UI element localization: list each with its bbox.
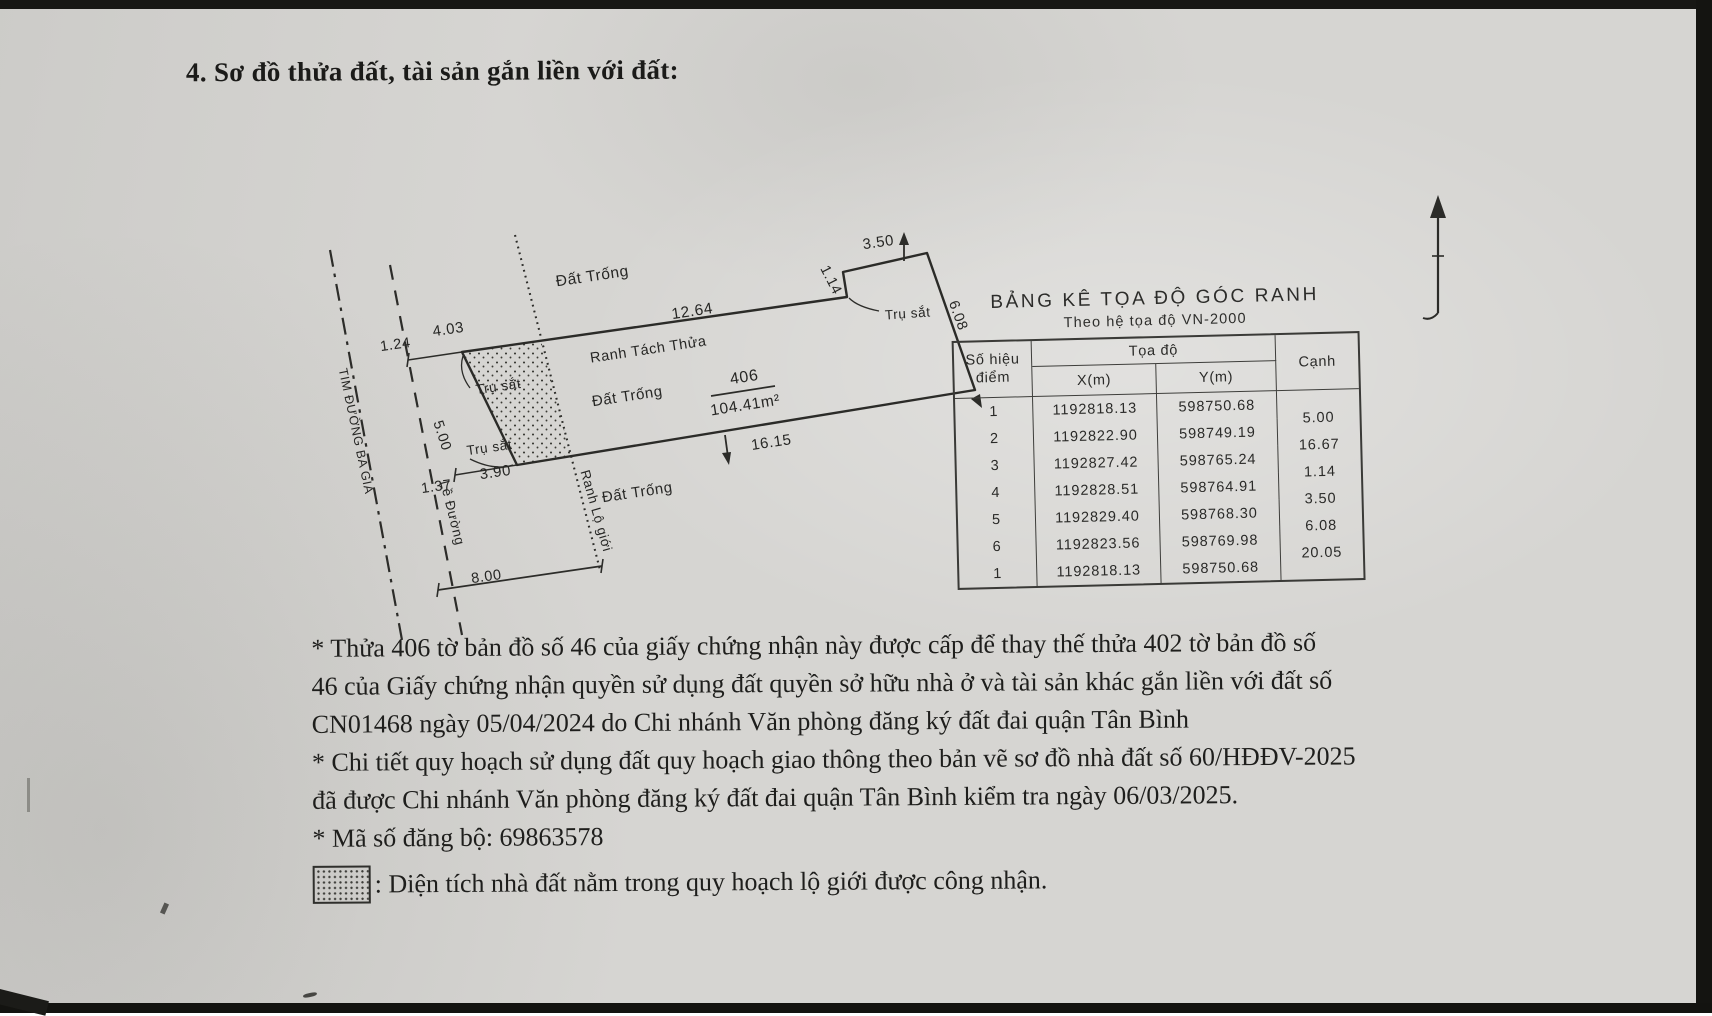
coord-x-cell: 1192822.90 bbox=[1034, 421, 1159, 451]
header-edge: Cạnh bbox=[1276, 333, 1359, 391]
coord-x-cell: 1192823.56 bbox=[1036, 529, 1161, 559]
dimension-tick bbox=[601, 559, 603, 573]
dimension-extension-bottom bbox=[455, 465, 517, 475]
label-ranh-lo-gioi: Ranh Lộ giới bbox=[577, 468, 615, 553]
coordinate-table-block: BẢNG KÊ TỌA ĐỘ GÓC RANH Theo hệ tọa độ V… bbox=[944, 283, 1371, 590]
down-arrow-icon bbox=[725, 435, 728, 457]
label-dat-trong-bottom: Đất Trống bbox=[601, 479, 674, 506]
dimension-tick bbox=[437, 583, 439, 597]
scan-artifact bbox=[303, 992, 318, 999]
dimension-offset-bottom: 1.37 bbox=[420, 477, 453, 497]
scan-artifact bbox=[27, 778, 30, 812]
label-tru-sat-3: Trụ sắt bbox=[884, 304, 931, 322]
dimension-road-width: 8.00 bbox=[470, 567, 503, 587]
leader-line bbox=[462, 356, 470, 388]
down-arrowhead-icon bbox=[722, 452, 731, 465]
coord-point-cell: 4 bbox=[957, 478, 1036, 507]
edge-length-value: 5.00 bbox=[1277, 409, 1359, 427]
coord-y-cell: 598764.91 bbox=[1159, 472, 1280, 502]
coord-point-cell: 1 bbox=[955, 397, 1034, 426]
label-ranh-tach-thua: Ranh Tách Thửa bbox=[589, 333, 708, 366]
section-heading: 4. Sơ đồ thửa đất, tài sản gắn liền với … bbox=[186, 55, 679, 89]
note-line: * Mã số đăng bộ: 69863578 bbox=[312, 812, 1572, 858]
road-edge-line bbox=[390, 265, 462, 635]
setback-boundary-line bbox=[515, 235, 600, 570]
parcel-area: 104.41m² bbox=[709, 392, 781, 420]
road-width-dimension-line bbox=[438, 566, 602, 590]
dimension-top-seg2: 12.64 bbox=[670, 300, 714, 323]
up-arrowhead-icon bbox=[899, 232, 909, 245]
dimension-jog: 1.14 bbox=[816, 263, 844, 298]
coord-x-cell: 1192829.40 bbox=[1036, 502, 1161, 532]
parcel-number: 406 bbox=[729, 367, 760, 388]
coordinate-table: Số hiệu điểm Tọa độ X(m) Y(m) Cạnh 5.001… bbox=[952, 331, 1366, 590]
label-tim-duong: TIM ĐƯỜNG BA GIA bbox=[336, 367, 377, 496]
coord-x-cell: 1192828.51 bbox=[1035, 475, 1160, 505]
coord-point-cell: 1 bbox=[959, 559, 1038, 588]
leader-line bbox=[849, 298, 879, 311]
edge-length-value: 1.14 bbox=[1279, 463, 1361, 481]
notes-block: * Thửa 406 tờ bản đồ số 46 của giấy chứn… bbox=[311, 622, 1573, 904]
edge-length-column: 5.0016.671.143.506.0820.05 bbox=[1277, 389, 1364, 580]
coord-y-cell: 598750.68 bbox=[1161, 553, 1282, 583]
coord-y-cell: 598765.24 bbox=[1158, 445, 1279, 475]
scan-edge-bottom bbox=[0, 1003, 1712, 1013]
coord-point-cell: 6 bbox=[958, 532, 1037, 561]
setback-area-hatch bbox=[462, 341, 571, 465]
coord-point-cell: 3 bbox=[956, 451, 1035, 480]
dimension-bottom-seg1: 3.90 bbox=[479, 462, 513, 483]
header-point-line1: Số hiệu bbox=[965, 351, 1020, 370]
leader-line bbox=[470, 459, 513, 467]
road-centerline bbox=[330, 250, 402, 640]
dimension-tick bbox=[454, 468, 456, 482]
label-dat-trong-top: Đất Trống bbox=[555, 263, 630, 291]
legend-text: : Diện tích nhà đất nằm trong quy hoạch … bbox=[375, 865, 1048, 899]
label-tru-sat-2: Trụ sắt bbox=[466, 437, 513, 458]
coord-y-cell: 598749.19 bbox=[1158, 418, 1279, 448]
coord-y-cell: 598769.98 bbox=[1160, 526, 1281, 556]
coord-x-cell: 1192818.13 bbox=[1037, 556, 1162, 586]
parcel-outline bbox=[462, 253, 975, 465]
edge-length-value: 6.08 bbox=[1280, 517, 1362, 535]
dimension-top-seg1: 4.03 bbox=[432, 319, 466, 340]
dimension-left-edge: 5.00 bbox=[429, 419, 454, 453]
dimension-bottom-seg2: 16.15 bbox=[750, 431, 793, 454]
coord-point-cell: 5 bbox=[958, 505, 1037, 534]
coord-x-cell: 1192827.42 bbox=[1034, 448, 1159, 478]
edge-length-value: 20.05 bbox=[1281, 544, 1363, 562]
scan-edge-right bbox=[1696, 0, 1712, 1013]
dimension-offset-top: 1.24 bbox=[379, 335, 412, 355]
fraction-bar bbox=[711, 386, 775, 396]
dimension-tick bbox=[407, 353, 409, 367]
edge-length-value: 16.67 bbox=[1278, 436, 1360, 454]
dimension-extension-top bbox=[408, 352, 462, 360]
coord-point-cell: 2 bbox=[956, 424, 1035, 453]
north-arrow-icon bbox=[1423, 195, 1446, 319]
label-tru-sat-1: Trụ sắt bbox=[475, 376, 522, 397]
coord-y-cell: 598750.68 bbox=[1157, 391, 1278, 421]
scanned-document-page: 4. Sơ đồ thửa đất, tài sản gắn liền với … bbox=[0, 0, 1712, 1013]
scan-edge-top bbox=[0, 0, 1712, 9]
coord-x-cell: 1192818.13 bbox=[1033, 394, 1158, 424]
edge-length-value: 3.50 bbox=[1279, 490, 1361, 508]
header-point-line2: điểm bbox=[976, 369, 1011, 387]
header-x: X(m) bbox=[1032, 364, 1157, 397]
legend-row: : Diện tích nhà đất nằm trong quy hoạch … bbox=[313, 858, 1573, 904]
scan-artifact bbox=[160, 902, 169, 914]
label-le-duong: Lề Đường bbox=[437, 479, 468, 547]
coord-y-cell: 598768.30 bbox=[1160, 499, 1281, 529]
stipple-legend-swatch bbox=[313, 865, 371, 903]
header-y: Y(m) bbox=[1156, 361, 1277, 394]
label-dat-trong-mid: Đất Trống bbox=[591, 383, 664, 410]
header-point-number: Số hiệu điểm bbox=[954, 341, 1033, 399]
dimension-top-right: 3.50 bbox=[862, 232, 896, 253]
